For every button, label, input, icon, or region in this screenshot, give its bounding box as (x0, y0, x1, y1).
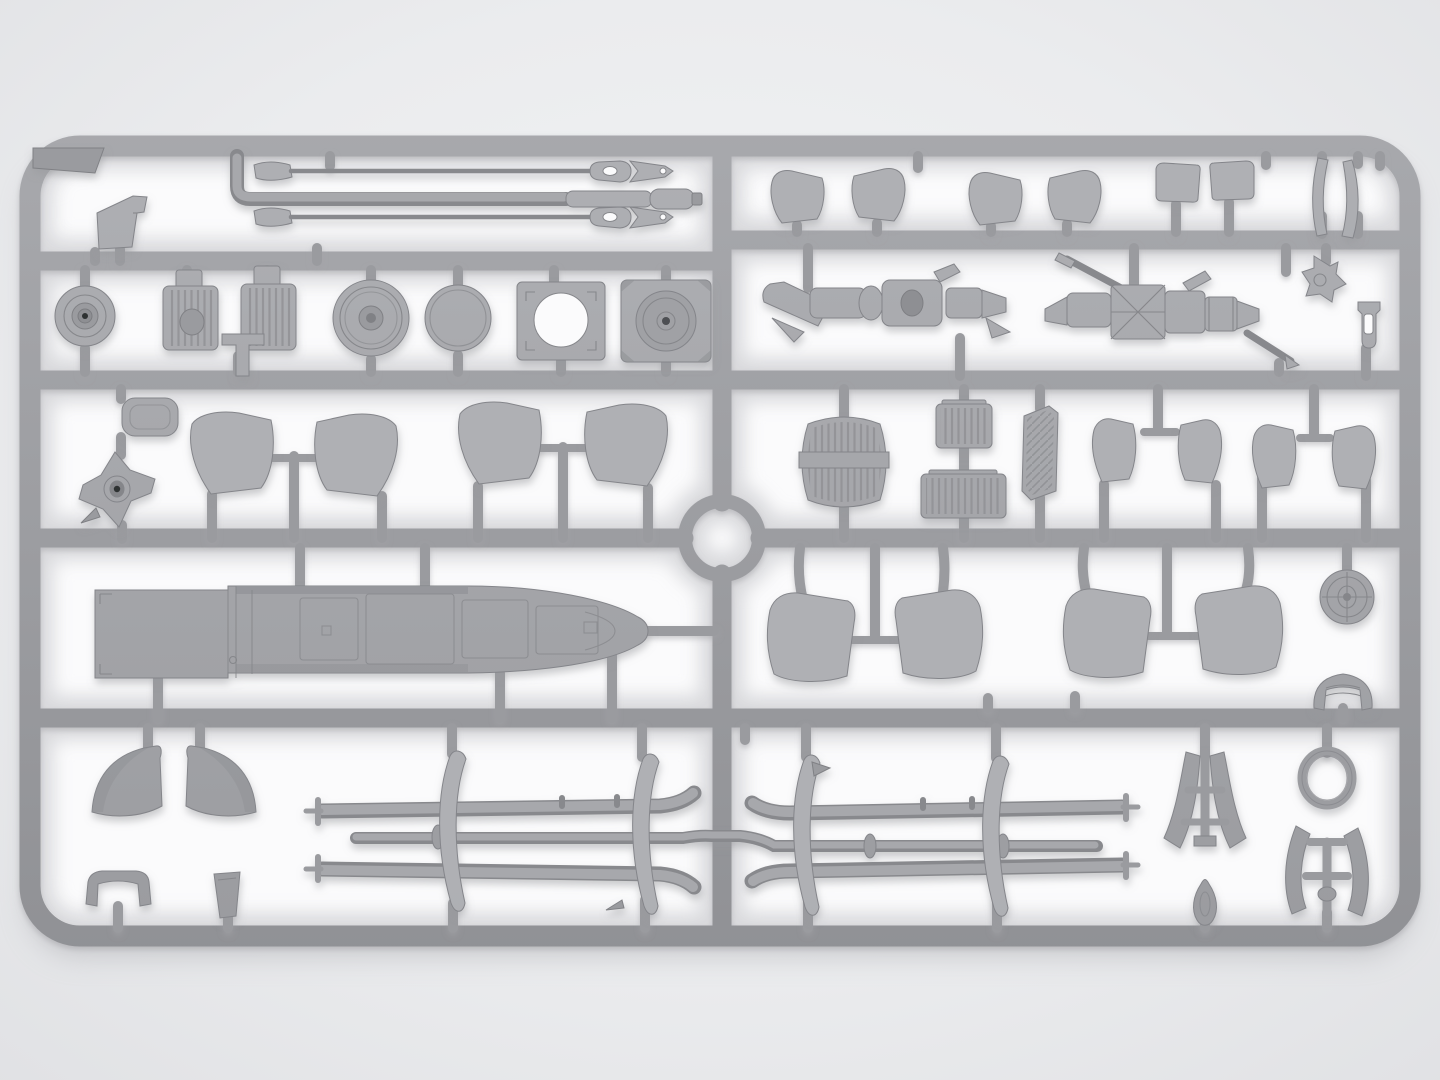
part-horn-fairing-frame (1286, 826, 1369, 916)
part-louvered-vent-panel (1022, 406, 1058, 500)
part-ribbed-seat-2 (921, 470, 1006, 518)
part-main-wheel (333, 280, 409, 356)
sprue-photo (0, 0, 1440, 1080)
part-spoked-wheel-disc (1320, 570, 1374, 624)
part-mount-plate-opening (517, 282, 605, 360)
part-belt-pulley-hub (55, 286, 115, 346)
part-mount-plate-hub (621, 280, 711, 362)
part-tire-disc (425, 285, 491, 351)
part-ribbed-seat-1 (936, 400, 992, 448)
sprue (30, 146, 1410, 936)
part-corner-tab-plate (33, 148, 104, 173)
part-seat-cushion (122, 398, 178, 436)
part-radiator-core (799, 417, 889, 507)
part-fuselage-spine-panel (95, 586, 648, 678)
photo-stage (0, 0, 1440, 1080)
